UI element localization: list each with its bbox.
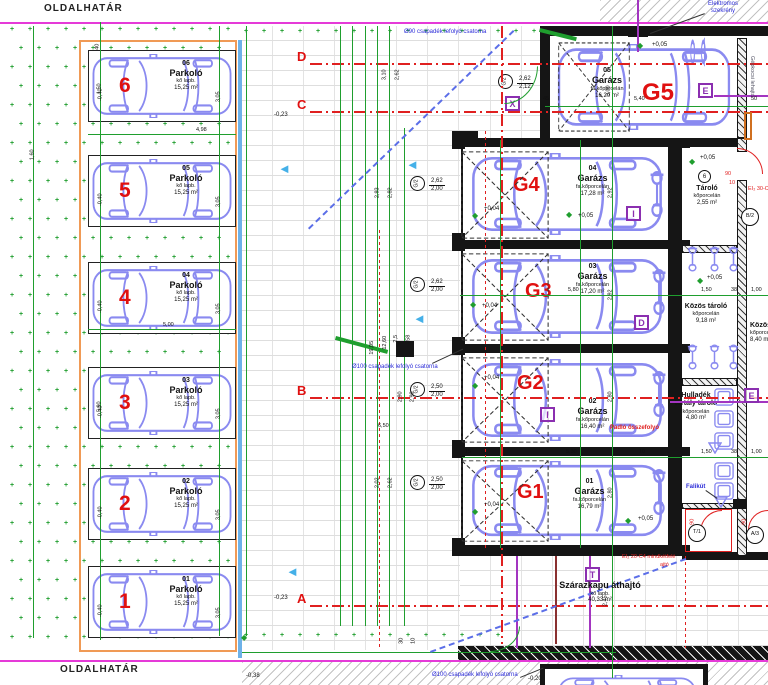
parking-number: 6 — [119, 75, 131, 96]
section-line-vertical — [501, 26, 503, 644]
plant-icon: + — [316, 632, 320, 639]
plant-icon: + — [73, 45, 77, 52]
parking-number: 2 — [119, 493, 131, 514]
wall — [540, 26, 550, 146]
tag-letter: I — [546, 410, 549, 420]
plant-icon: + — [37, 197, 41, 204]
parking-area: 15,25 m² — [147, 503, 225, 510]
bicycle-icon — [686, 344, 699, 370]
plant-icon: + — [73, 463, 77, 470]
tag-letter: E — [748, 391, 754, 401]
plant-icon: + — [10, 482, 14, 489]
parking-number: 3 — [119, 392, 131, 413]
plant-icon: + — [55, 311, 59, 318]
plant-icon: + — [28, 140, 32, 147]
tag-letter: E — [702, 86, 708, 96]
plant-icon: + — [55, 615, 59, 622]
plant-icon: + — [28, 596, 32, 603]
plant-icon: + — [10, 254, 14, 261]
plant-icon: + — [55, 577, 59, 584]
drain-channel — [238, 40, 242, 658]
plant-icon: + — [19, 311, 23, 318]
ref-circle-label: 6 — [703, 174, 706, 180]
plant-icon: + — [28, 292, 32, 299]
dim-line — [460, 295, 768, 296]
door-mark-values: 2,50 2,00 — [429, 477, 445, 492]
plant-icon: + — [10, 520, 14, 527]
plant-icon: + — [55, 425, 59, 432]
dim-line — [246, 26, 247, 636]
grass-strip-top: +++++++++++++++++ — [242, 26, 542, 46]
plant-icon: + — [28, 482, 32, 489]
ref-circle-label: A/3 — [751, 532, 759, 538]
parking-name: Parkoló — [147, 486, 225, 496]
plant-icon: + — [37, 387, 41, 394]
section-letter-c: C — [297, 98, 306, 111]
plant-icon: + — [28, 26, 32, 33]
plant-icon: + — [64, 292, 68, 299]
plant-icon: + — [46, 102, 50, 109]
parking-area: 15,25 m² — [147, 190, 225, 197]
plant-icon: + — [10, 64, 14, 71]
plant-icon: + — [55, 501, 59, 508]
parking-bay: 4 04 Parkoló kő lapb. 15,25 m² — [88, 262, 236, 334]
wall — [668, 138, 682, 556]
note-elektromos: Elektromos szekrény — [700, 1, 746, 15]
plant-icon: + — [55, 83, 59, 90]
red-dotted-line — [685, 556, 686, 648]
plant-icon: + — [10, 178, 14, 185]
plant-icon: + — [46, 596, 50, 603]
wall-pier — [733, 499, 747, 509]
motorcycle-icon — [690, 32, 706, 72]
plant-icon: + — [73, 83, 77, 90]
tag-box-e: E — [698, 83, 713, 98]
utility-line — [637, 0, 639, 52]
room-surface: kőporcelán — [672, 409, 720, 416]
plant-icon: + — [46, 406, 50, 413]
door-width: 2,00 — [429, 186, 445, 193]
plant-icon: + — [37, 539, 41, 546]
plant-icon: + — [28, 216, 32, 223]
dim-line — [545, 106, 768, 107]
garage-label: 01 Garázs fa.kőporcelán 16,79 m² — [537, 478, 642, 511]
bicycle-icon — [727, 246, 740, 272]
plant-icon: + — [298, 632, 302, 639]
plant-icon: + — [73, 273, 77, 280]
plant-icon: + — [19, 349, 23, 356]
dim-line — [377, 26, 378, 626]
tag-letter: I — [632, 209, 635, 219]
plant-icon: + — [64, 634, 68, 641]
ref-circle: B/2 — [741, 208, 759, 226]
ref-circle-label: T/1 — [693, 530, 701, 536]
annotation-label: +0,05 — [700, 155, 715, 161]
plant-icon: + — [46, 64, 50, 71]
motorcycle-icon — [650, 268, 668, 316]
garage-name: Garázs — [540, 406, 645, 417]
plant-icon: + — [10, 444, 14, 451]
parking-bay: 1 01 Parkoló kő lapb. 15,25 m² — [88, 566, 236, 638]
plant-icon: + — [10, 330, 14, 337]
section-line-c — [310, 111, 768, 113]
red-dotted-line — [485, 131, 486, 551]
annotation-label: +0,05 — [707, 275, 722, 281]
plant-icon: + — [73, 615, 77, 622]
note-fire-door: EI₂ 30-C4 — [748, 186, 768, 193]
garage-door-opening — [461, 151, 549, 239]
plant-icon: + — [64, 216, 68, 223]
plant-icon: + — [37, 425, 41, 432]
plant-icon: + — [10, 406, 14, 413]
plant-icon: + — [46, 140, 50, 147]
plant-icon: + — [64, 482, 68, 489]
plant-icon: + — [388, 632, 392, 639]
room-surface: kőporcelán — [682, 193, 732, 200]
room-label-tarolo: Tároló kőporcelán 2,55 m² — [682, 185, 732, 207]
garage-door-opening — [461, 253, 549, 341]
parking-name: Parkoló — [147, 385, 225, 395]
parking-label: 04 Parkoló kő lapb. 15,25 m² — [147, 272, 225, 304]
tag-box-i: I — [626, 206, 641, 221]
dim-line — [340, 26, 341, 626]
plant-icon: + — [28, 102, 32, 109]
plant-icon: + — [10, 596, 14, 603]
door-height: 2,62 — [429, 178, 445, 186]
plant-icon: + — [73, 425, 77, 432]
plant-icon: + — [370, 28, 374, 35]
plant-icon: + — [46, 26, 50, 33]
door-mark-label: G/2 — [415, 478, 420, 486]
plant-icon: + — [334, 632, 338, 639]
plant-icon: + — [280, 632, 284, 639]
plant-icon: + — [28, 444, 32, 451]
plant-icon: + — [37, 159, 41, 166]
dim-line — [219, 26, 220, 636]
door-mark-label: G/2 — [415, 280, 420, 288]
plant-icon: + — [37, 273, 41, 280]
dim-line — [352, 26, 353, 626]
plant-icon: + — [37, 577, 41, 584]
parking-bay: 6 06 Parkoló kő lapb. 15,25 m² — [88, 50, 236, 122]
plant-icon: + — [55, 197, 59, 204]
wall — [456, 240, 690, 249]
plant-icon: + — [37, 45, 41, 52]
plant-icon: + — [352, 632, 356, 639]
plant-icon: + — [532, 28, 536, 35]
note-floor-drain: Padló összefolyó — [610, 425, 659, 432]
garage-label: 04 Garázs fa.kőporcelán 17,28 m² — [540, 165, 645, 198]
plant-icon: + — [28, 330, 32, 337]
plant-icon: + — [73, 235, 77, 242]
garage-code: 02 — [540, 398, 645, 406]
plant-icon: + — [226, 26, 230, 33]
plant-icon: + — [73, 387, 77, 394]
dim-line — [242, 652, 616, 653]
plant-icon: + — [316, 28, 320, 35]
plant-icon: + — [64, 368, 68, 375]
plant-icon: + — [19, 273, 23, 280]
planting-border — [79, 40, 237, 652]
garage-surface: fa.kőporcelán — [537, 497, 642, 504]
plant-icon: + — [46, 216, 50, 223]
room-area: 9,18 m² — [680, 318, 732, 325]
parking-code: 04 — [147, 272, 225, 280]
tag-box-e: E — [744, 388, 759, 403]
garage-id: G5 — [642, 81, 674, 105]
garage-surface: fa.kőporcelán — [540, 282, 645, 289]
plant-icon: + — [10, 558, 14, 565]
plant-icon: + — [10, 102, 14, 109]
note-d100: Ø100 csapadék lefolyó csatorna — [432, 672, 518, 679]
plant-icon: + — [37, 463, 41, 470]
plant-icon: + — [28, 520, 32, 527]
ref-circle: 6 — [698, 170, 711, 183]
parking-bay: 5 05 Parkoló kő lapb. 15,25 m² — [88, 155, 236, 227]
wall — [456, 344, 690, 353]
plant-icon: + — [64, 64, 68, 71]
motorcycle-icon — [650, 468, 668, 516]
annotation-label: 1,00 — [751, 450, 762, 456]
plant-icon: + — [64, 444, 68, 451]
tag-letter: D — [638, 318, 645, 328]
plant-icon: + — [28, 368, 32, 375]
door-swing-arc — [737, 148, 763, 174]
plant-icon: + — [19, 83, 23, 90]
room-surface: kőporcelán — [680, 311, 732, 318]
plant-icon: + — [73, 197, 77, 204]
plant-icon: + — [55, 387, 59, 394]
plant-icon: + — [73, 577, 77, 584]
level-marker-icon: ◆ — [689, 158, 695, 166]
parking-area: 15,25 m² — [147, 601, 225, 608]
parking-label: 06 Parkoló kő lapb. 15,25 m² — [147, 60, 225, 92]
door-mark: G/2 — [410, 475, 425, 490]
dim-line — [389, 26, 390, 626]
plant-icon: + — [64, 406, 68, 413]
utility-marker — [744, 112, 752, 140]
room-area: 2,55 m² — [682, 200, 732, 207]
plant-icon: + — [19, 539, 23, 546]
plant-icon: + — [28, 178, 32, 185]
ref-circle-label: B/2 — [746, 214, 754, 220]
bicycle-icon — [708, 344, 721, 370]
plant-icon: + — [262, 632, 266, 639]
plant-icon: + — [136, 26, 140, 33]
plant-icon: + — [46, 178, 50, 185]
section-letter-a: A — [297, 592, 306, 605]
plant-icon: + — [10, 292, 14, 299]
plant-icon: + — [55, 349, 59, 356]
plant-icon: + — [19, 235, 23, 242]
plant-icon: + — [64, 102, 68, 109]
red-dotted-line — [379, 230, 380, 650]
tag-letter: T — [590, 570, 596, 580]
annotation-label: 90 — [725, 172, 731, 178]
garage-area: 16,79 m² — [537, 504, 642, 511]
parking-label: 05 Parkoló kő lapb. 15,25 m² — [147, 165, 225, 197]
garage-code: 01 — [537, 478, 642, 486]
plant-icon: + — [19, 45, 23, 52]
plant-icon: + — [46, 292, 50, 299]
garage-code: 04 — [540, 165, 645, 173]
section-letter-d: D — [297, 50, 306, 63]
tag-box-i: I — [540, 407, 555, 422]
parking-bay: 3 03 Parkoló kő lapb. 15,25 m² — [88, 367, 236, 439]
plant-icon: + — [28, 558, 32, 565]
plant-icon: + — [496, 28, 500, 35]
parking-number: 5 — [119, 180, 131, 201]
door-mark-values: 2,62 2,00 — [429, 279, 445, 294]
plant-icon: + — [442, 632, 446, 639]
plant-icon: + — [55, 539, 59, 546]
parking-bay: 2 02 Parkoló kő lapb. 15,25 m² — [88, 468, 236, 540]
plant-icon: + — [514, 28, 518, 35]
drive-label: Szárazkapu áthajtó kő lapb. 40,33 m² — [538, 580, 662, 605]
plant-icon: + — [55, 273, 59, 280]
plant-icon: + — [73, 311, 77, 318]
plant-icon: + — [19, 159, 23, 166]
room-surface: kőporcelán — [750, 330, 768, 337]
plant-icon: + — [64, 558, 68, 565]
plant-icon: + — [10, 140, 14, 147]
plant-icon: + — [118, 26, 122, 33]
section-letter-b: B — [297, 384, 306, 397]
garage-door-opening — [461, 460, 549, 542]
parking-name: Parkoló — [147, 584, 225, 594]
waste-bin-icon — [714, 462, 734, 480]
plant-icon: + — [37, 235, 41, 242]
room-name: Közös tároló — [750, 322, 768, 330]
wall — [456, 447, 690, 456]
plant-icon: + — [19, 425, 23, 432]
boundary-label-bottom: OLDALHATÁR — [60, 664, 139, 675]
parking-label: 02 Parkoló kő lapb. 15,25 m² — [147, 478, 225, 510]
plant-icon: + — [73, 501, 77, 508]
plant-icon: + — [46, 330, 50, 337]
plant-icon: + — [280, 28, 284, 35]
door-mark-label: G/2 — [415, 179, 420, 187]
dim-line — [365, 26, 366, 626]
door-width: 2,00 — [429, 287, 445, 294]
door-mark-label: G/2 — [415, 385, 420, 393]
parking-area: 15,25 m² — [147, 85, 225, 92]
room-name: Közös tároló — [680, 303, 732, 311]
parking-area: 15,25 m² — [147, 402, 225, 409]
plant-icon: + — [424, 632, 428, 639]
plant-icon: + — [46, 520, 50, 527]
plant-icon: + — [64, 520, 68, 527]
parking-code: 02 — [147, 478, 225, 486]
car-icon — [557, 675, 697, 685]
garage-door-opening — [461, 357, 549, 443]
wall-hatched — [682, 378, 737, 386]
door-mark: G/2 — [410, 176, 425, 191]
room-label-kozos: Közös tároló kőporcelán 9,18 m² — [680, 303, 732, 325]
door-height: 2,50 — [429, 477, 445, 485]
parking-code: 05 — [147, 165, 225, 173]
annotation-label: 1,00 — [751, 288, 762, 294]
plant-icon: + — [10, 634, 14, 641]
room-area: 4,80 m² — [672, 415, 720, 422]
door-mark: G/2 — [410, 277, 425, 292]
plant-icon: + — [28, 64, 32, 71]
plant-icon: + — [190, 26, 194, 33]
garage-name: Garázs — [537, 486, 642, 497]
level-marker-icon: ◆ — [697, 277, 703, 285]
garage-label: 03 Garázs fa.kőporcelán 17,20 m² — [540, 263, 645, 296]
pipe-fitting — [396, 341, 414, 357]
bicycle-icon — [727, 344, 740, 370]
plant-icon: + — [19, 577, 23, 584]
room-name: Tároló — [682, 185, 732, 193]
plant-icon: + — [334, 28, 338, 35]
parking-name: Parkoló — [147, 173, 225, 183]
door-height: 2,62 — [429, 279, 445, 287]
plant-icon: + — [55, 463, 59, 470]
annotation-label: 1,50 — [701, 288, 712, 294]
ref-circle: T/1 — [688, 524, 706, 542]
plant-icon: + — [64, 596, 68, 603]
dim-line — [404, 128, 405, 626]
drive-surface: kő lapb. — [538, 591, 662, 598]
plant-icon: + — [19, 615, 23, 622]
garage-surface: fa.kőporcelán — [540, 184, 645, 191]
note-fire-door: ajtó — [660, 562, 669, 569]
plant-icon: + — [19, 387, 23, 394]
plant-icon: + — [46, 444, 50, 451]
note-d100: Ø100 csapadék lefolyó csatorna — [352, 364, 438, 371]
plant-icon: + — [208, 26, 212, 33]
parking-label: 01 Parkoló kő lapb. 15,25 m² — [147, 576, 225, 608]
plant-icon: + — [46, 558, 50, 565]
parking-number: 1 — [119, 591, 131, 612]
plant-icon: + — [37, 501, 41, 508]
plant-icon: + — [37, 615, 41, 622]
plant-icon: + — [10, 216, 14, 223]
plant-icon: + — [28, 406, 32, 413]
parking-name: Parkoló — [147, 280, 225, 290]
note-fire-door: EI₂ 20-C4 mindkétfelé — [622, 554, 676, 561]
plant-icon: + — [46, 634, 50, 641]
garage-area: 17,28 m² — [540, 191, 645, 198]
plant-icon: + — [73, 539, 77, 546]
garage-surface: fa.kőporcelán — [540, 417, 645, 424]
plant-icon: + — [64, 330, 68, 337]
plant-icon: + — [37, 311, 41, 318]
parking-code: 06 — [147, 60, 225, 68]
dim-line — [500, 140, 501, 548]
plant-icon: + — [73, 349, 77, 356]
parking-label: 03 Parkoló kő lapb. 15,25 m² — [147, 377, 225, 409]
wall-sink-icon — [708, 442, 722, 454]
site-plan: ++++++++++++++++++++++++++++++++++++++++… — [0, 0, 768, 685]
motorcycle-icon — [650, 370, 668, 418]
plant-icon: + — [37, 121, 41, 128]
parking-area: 15,25 m² — [147, 297, 225, 304]
plant-icon: + — [370, 632, 374, 639]
parking-code: 01 — [147, 576, 225, 584]
plant-icon: + — [73, 159, 77, 166]
waste-bin-icon — [714, 410, 734, 428]
plant-icon: + — [19, 463, 23, 470]
section-line-d — [310, 63, 768, 65]
parking-number: 4 — [119, 287, 131, 308]
door-height: 2,50 — [429, 384, 445, 392]
note-d90: Ø90 csapadék lefolyó csatorna — [404, 29, 486, 36]
door-width: 2,00 — [429, 485, 445, 492]
dim-line — [100, 22, 101, 640]
